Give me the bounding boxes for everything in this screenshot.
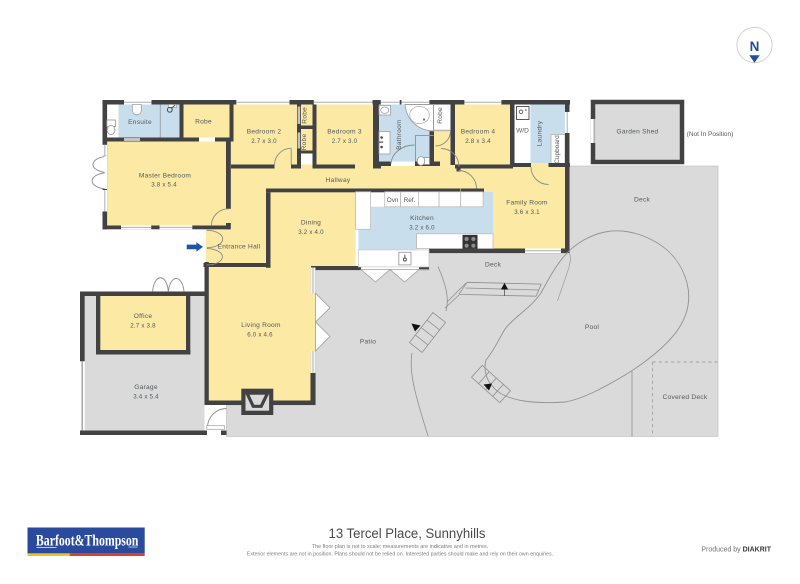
svg-text:Dining: Dining: [301, 220, 321, 227]
svg-text:Bedroom 2: Bedroom 2: [247, 129, 282, 136]
svg-text:13 Tercel Place, Sunnyhills: 13 Tercel Place, Sunnyhills: [329, 526, 486, 542]
svg-text:2.7 x 3.0: 2.7 x 3.0: [251, 138, 277, 145]
svg-text:Bedroom 3: Bedroom 3: [327, 129, 362, 136]
svg-text:Bathroom: Bathroom: [396, 119, 403, 150]
svg-text:Ovn: Ovn: [387, 197, 399, 204]
svg-text:3.8 x 5.4: 3.8 x 5.4: [151, 182, 177, 189]
svg-text:Produced by DIAKRIT: Produced by DIAKRIT: [701, 547, 771, 554]
svg-text:Ref.: Ref.: [404, 197, 416, 204]
svg-text:6.0 x 4.6: 6.0 x 4.6: [247, 332, 273, 339]
svg-text:Office: Office: [134, 313, 153, 320]
svg-text:Ensuite: Ensuite: [128, 119, 152, 126]
svg-text:Kitchen: Kitchen: [410, 215, 434, 222]
svg-text:The floor plan is not to scale: The floor plan is not to scale; measurem…: [312, 544, 489, 550]
svg-text:3.6 x 3.1: 3.6 x 3.1: [514, 209, 540, 216]
svg-text:Laundry: Laundry: [537, 120, 544, 146]
svg-text:Robe: Robe: [437, 107, 444, 124]
svg-text:Garage: Garage: [134, 384, 158, 391]
svg-text:Robe: Robe: [195, 119, 212, 126]
svg-text:Deck: Deck: [485, 262, 501, 269]
svg-text:Robe: Robe: [302, 107, 309, 124]
svg-text:Living Room: Living Room: [241, 322, 281, 329]
svg-text:2.8 x 3.4: 2.8 x 3.4: [465, 138, 491, 145]
svg-text:Master Bedroom: Master Bedroom: [139, 173, 191, 180]
svg-text:Robe: Robe: [301, 134, 308, 151]
svg-text:Cupboard: Cupboard: [554, 135, 561, 164]
svg-text:Pool: Pool: [585, 324, 599, 331]
svg-text:2.7 x 3.8: 2.7 x 3.8: [130, 323, 156, 330]
svg-text:N: N: [750, 39, 760, 54]
svg-text:Family Room: Family Room: [506, 200, 548, 207]
svg-text:Deck: Deck: [634, 197, 650, 204]
svg-text:Barfoot&Thompson: Barfoot&Thompson: [36, 532, 139, 549]
svg-text:(Not In Position): (Not In Position): [687, 131, 734, 138]
svg-text:3.2 x 6.0: 3.2 x 6.0: [409, 225, 435, 232]
svg-text:Exterior elements are not in p: Exterior elements are not in position. P…: [247, 552, 553, 558]
svg-text:W/D: W/D: [516, 128, 529, 135]
svg-text:Covered Deck: Covered Deck: [663, 394, 708, 401]
svg-text:Entrance Hall: Entrance Hall: [218, 244, 261, 251]
svg-text:Garden Shed: Garden Shed: [617, 129, 659, 136]
svg-text:Bedroom 4: Bedroom 4: [461, 129, 496, 136]
svg-text:3.2 x 4.0: 3.2 x 4.0: [298, 229, 324, 236]
svg-text:3.4 x 5.4: 3.4 x 5.4: [133, 394, 159, 401]
svg-text:Hallway: Hallway: [326, 177, 351, 184]
svg-text:Patio: Patio: [360, 339, 376, 346]
svg-text:2.7 x 3.0: 2.7 x 3.0: [332, 138, 358, 145]
